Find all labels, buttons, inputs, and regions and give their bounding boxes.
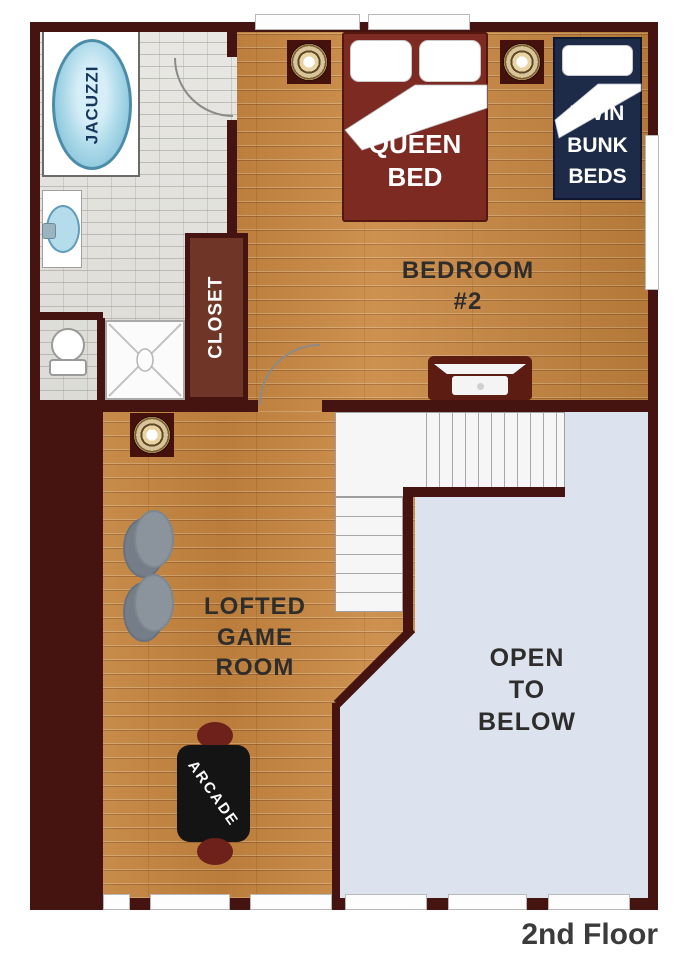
gaming-chair [123,508,178,582]
window-right [645,135,659,290]
light-bulb-icon [290,43,328,81]
jacuzzi-label: JACUZZI [81,65,103,144]
closet-label: CLOSET [204,276,228,359]
floor-title: 2nd Floor [430,916,658,954]
ceiling-light-icon [287,40,331,84]
faucet-icon [42,223,56,239]
left-solid-block [30,400,103,910]
window-bottom [103,894,130,910]
shower-stub-wall [97,318,105,402]
window-bottom [150,894,230,910]
stair-l-wall-vertical [403,487,413,632]
queen-bed-pillow [350,40,412,82]
arcade-label: ARCADE [184,757,243,830]
stairs-upper-landing [335,412,565,497]
stairs-upper-treads [426,413,564,496]
bathroom-wall-upper [227,22,237,57]
bunk-bed-pillow [562,45,633,76]
sink-vanity [42,190,82,268]
window-bottom [250,894,332,910]
toilet-divider-wall [30,312,103,320]
light-bulb-icon [503,43,541,81]
jacuzzi-tub: JACUZZI [52,39,132,170]
queen-bed-pillow [419,40,481,82]
wall-middle-right [322,400,658,412]
bathroom-wall-lower [227,120,237,233]
window-bottom [448,894,527,910]
toilet-bowl [51,328,85,362]
window-bottom [548,894,630,910]
window-top-right [368,14,470,30]
jacuzzi-tub-surround: JACUZZI [42,30,140,177]
toilet-tank [49,359,87,376]
twin-bunk-beds-label: TWIN BUNK BEDS [553,98,642,193]
ceiling-light-icon [130,413,174,457]
bedroom2-label: BEDROOM #2 [368,256,568,317]
wall-left [30,22,40,412]
stair-l-wall-horizontal [407,487,565,497]
dresser [428,356,532,400]
arcade-machine: ARCADE [177,745,250,842]
dresser-drawer [452,376,508,395]
queen-bed-label: QUEEN BED [342,128,488,195]
floor-plan: JACUZZI CLOSET ARCADE [0,0,679,960]
closet: CLOSET [185,233,248,402]
light-bulb-icon [133,416,171,454]
shower-stall [105,320,185,400]
ceiling-light-icon [500,40,544,84]
window-top-left [255,14,360,30]
arcade-stool [197,838,233,865]
drawer-knob [477,383,484,390]
open-to-below-label: OPEN TO BELOW [427,642,627,738]
window-bottom [345,894,427,910]
open-area-west-wall [332,703,340,898]
game-room-label: LOFTED GAME ROOM [155,592,355,684]
chair-cushion [134,510,174,568]
dresser-top [434,364,526,374]
